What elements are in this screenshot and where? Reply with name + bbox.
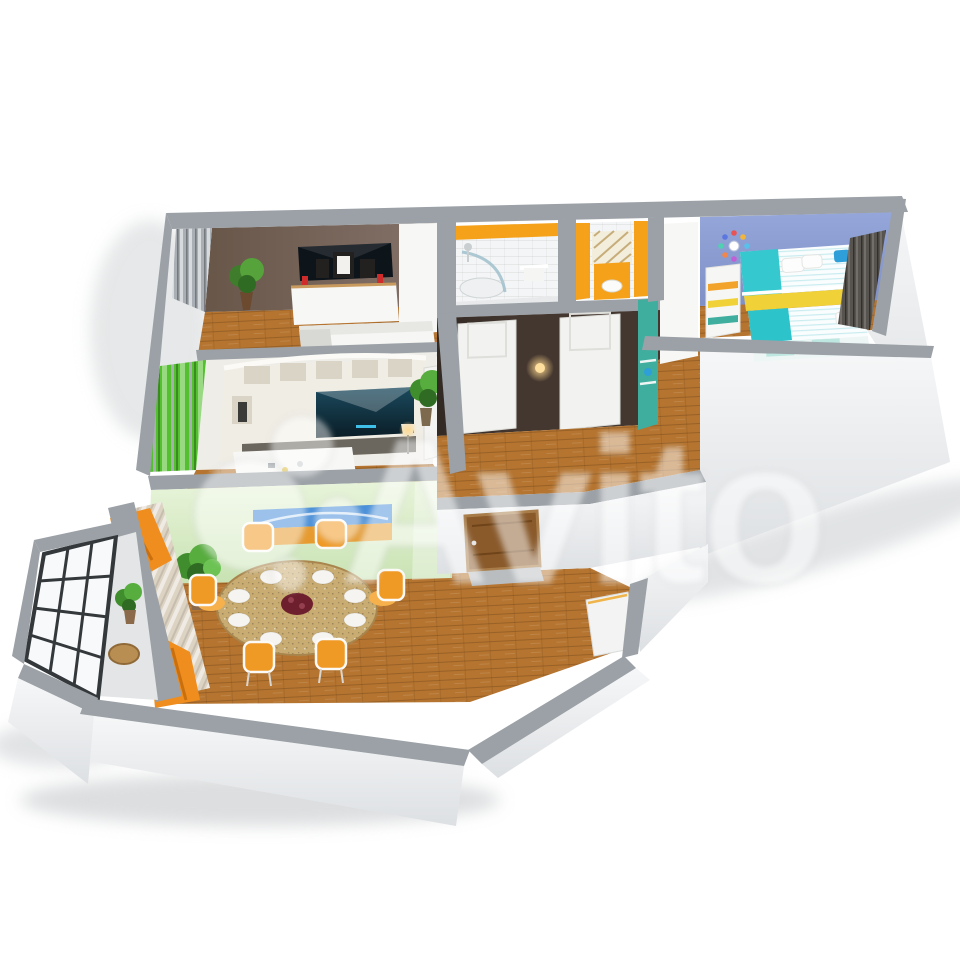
- clock-dot: [740, 234, 746, 240]
- bedroom-wardrobe: [399, 223, 437, 336]
- clock-dot: [731, 230, 737, 236]
- bedroom-dresser: [291, 283, 399, 325]
- wc-orange-stripe-left: [576, 223, 590, 300]
- bathroom: [452, 223, 558, 314]
- clock-face: [729, 241, 739, 251]
- towel-rail: [520, 266, 548, 268]
- bed-stairs: [706, 264, 740, 338]
- balcony-table: [109, 644, 139, 664]
- plate: [228, 589, 250, 603]
- wall-lamp: [526, 354, 554, 382]
- centerpiece-bloom: [299, 603, 305, 609]
- bedroom: [172, 223, 437, 357]
- balcony: [12, 522, 158, 714]
- red-vase: [377, 274, 383, 283]
- blue-bin: [644, 368, 652, 376]
- red-vase: [302, 276, 308, 285]
- wall-wc-kids: [648, 217, 664, 302]
- clock-dot: [718, 243, 724, 249]
- lower-blanket: [748, 308, 792, 344]
- plant-foliage: [124, 583, 142, 601]
- shelf-cell: [352, 360, 378, 378]
- watermark-logo-circle: [194, 459, 306, 571]
- shelf-cell: [316, 361, 342, 379]
- wall-bath-wc: [558, 219, 576, 304]
- photo-frame: [316, 259, 329, 278]
- wc-orange-stripe-right: [634, 221, 648, 297]
- clock-dot: [744, 243, 750, 249]
- floorplan-photo: Avito: [0, 0, 960, 960]
- plant-foliage: [238, 275, 256, 293]
- photo-frame-mat: [337, 256, 350, 274]
- clock-dot: [722, 234, 728, 240]
- lattice-panel: [592, 230, 632, 266]
- pillow: [782, 257, 805, 273]
- watermark-logo-circle: [272, 557, 306, 591]
- photo-frame: [360, 259, 375, 278]
- upper-blanket: [740, 249, 782, 296]
- clock-dot: [731, 256, 737, 262]
- shelf-cell: [244, 366, 270, 384]
- clock-dot: [722, 252, 728, 258]
- towel: [524, 268, 544, 281]
- floorplan-svg: Avito: [0, 0, 960, 960]
- plate: [312, 570, 334, 584]
- pillow: [802, 254, 823, 268]
- watermark-text: Avito: [340, 396, 822, 628]
- plant-pot: [124, 610, 136, 624]
- shelf-cell: [388, 359, 412, 377]
- wall-bedroom-bath: [437, 221, 456, 314]
- lamp-bulb: [535, 363, 545, 373]
- bedroom-blinds: [172, 228, 212, 312]
- shower-tray: [460, 278, 504, 298]
- toilet: [602, 280, 622, 292]
- speaker: [238, 402, 247, 422]
- wc: [576, 221, 648, 300]
- shelf-cell: [280, 363, 306, 381]
- lattice-shelf: [592, 230, 632, 266]
- plate: [228, 613, 250, 627]
- centerpiece-bloom: [288, 597, 294, 603]
- watermark-logo-circle: [271, 415, 333, 477]
- red-centerpiece: [281, 593, 313, 615]
